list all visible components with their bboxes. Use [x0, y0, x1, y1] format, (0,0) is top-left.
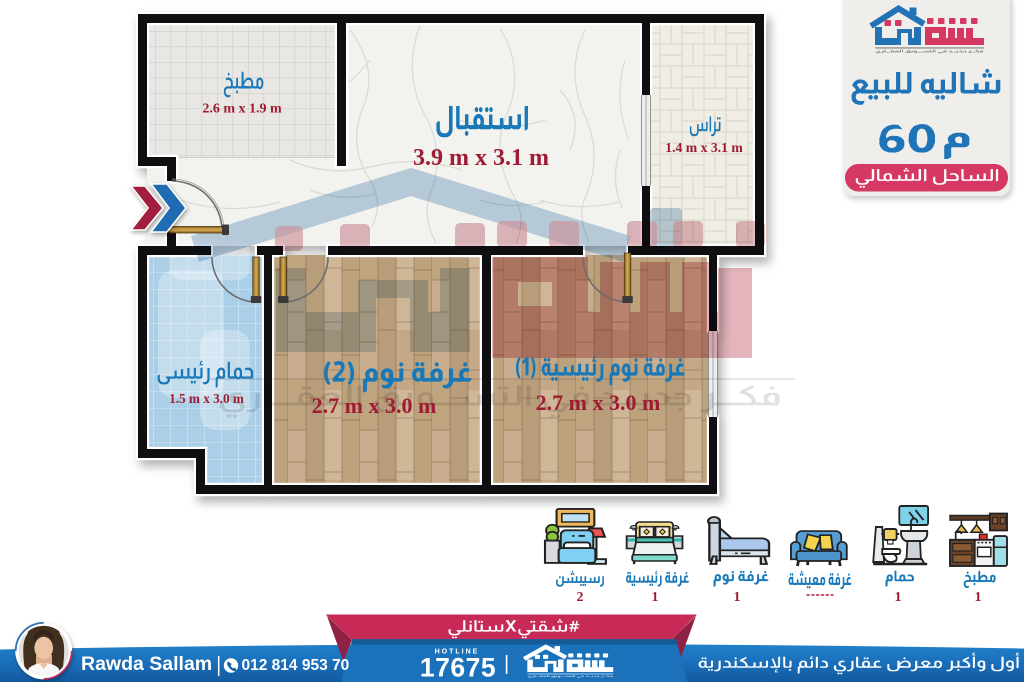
svg-text:2.7 m x 3.0 m: 2.7 m x 3.0 m — [536, 390, 661, 415]
svg-text:3.9 m x 3.1 m: 3.9 m x 3.1 m — [413, 145, 549, 171]
svg-text:2: 2 — [577, 590, 584, 605]
svg-text:1: 1 — [895, 590, 902, 605]
svg-text:17675: 17675 — [420, 652, 496, 682]
svg-text:1: 1 — [652, 590, 659, 605]
svg-text:1.5 m x 3.0 m: 1.5 m x 3.0 m — [169, 391, 244, 406]
svg-text:Rawda Sallam: Rawda Sallam — [81, 653, 212, 675]
svg-text:012 814 953 70: 012 814 953 70 — [242, 657, 350, 674]
svg-text:2.6 m x 1.9 m: 2.6 m x 1.9 m — [202, 102, 282, 117]
svg-text:1.4 m x 3.1 m: 1.4 m x 3.1 m — [665, 140, 743, 155]
svg-text:2.7 m x 3.0 m: 2.7 m x 3.0 m — [312, 393, 437, 418]
svg-text:1: 1 — [734, 590, 741, 605]
svg-text:1: 1 — [975, 590, 982, 605]
